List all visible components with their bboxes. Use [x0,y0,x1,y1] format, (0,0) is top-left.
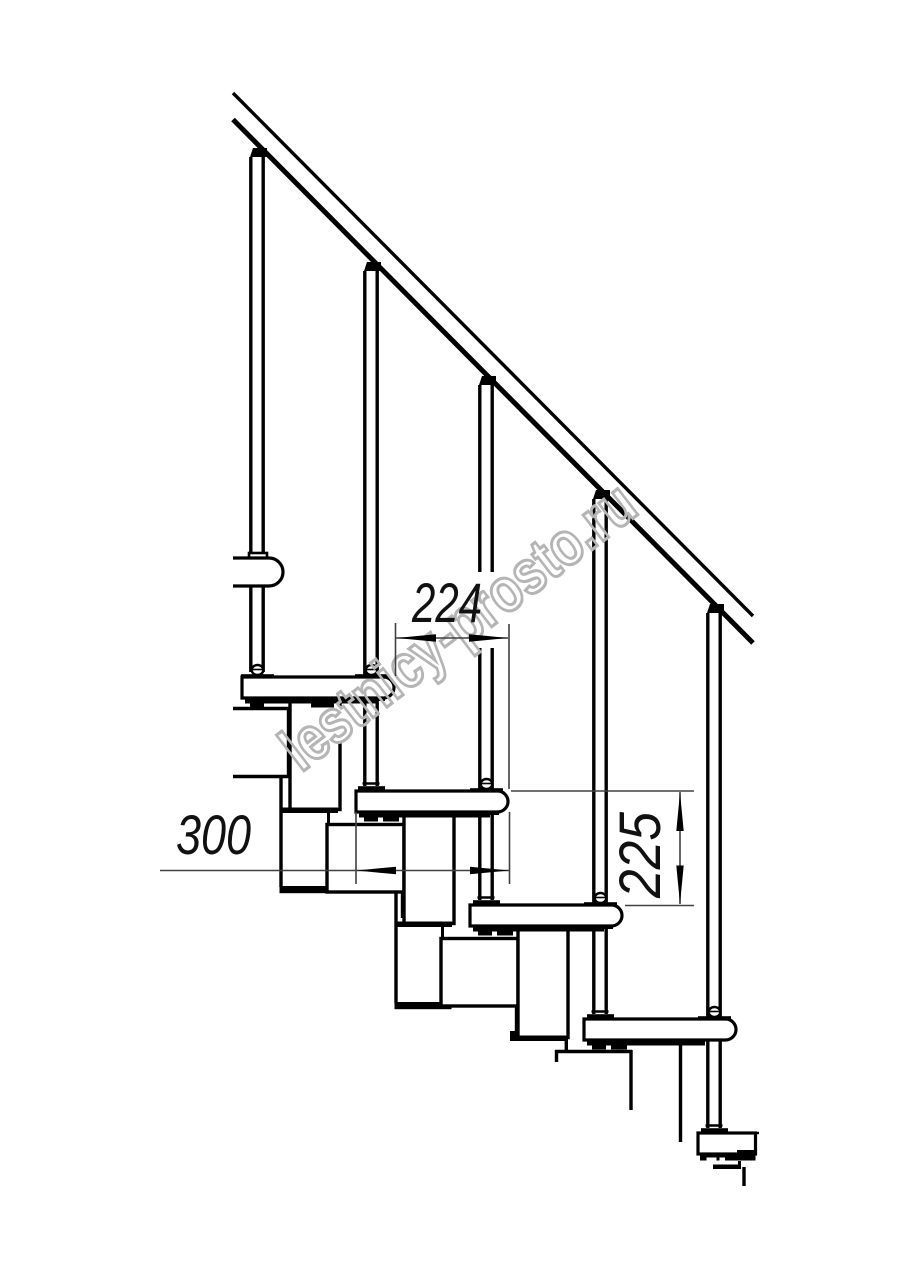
svg-text:224: 224 [411,571,482,634]
svg-text:225: 225 [608,811,673,899]
svg-text:300: 300 [176,803,251,866]
